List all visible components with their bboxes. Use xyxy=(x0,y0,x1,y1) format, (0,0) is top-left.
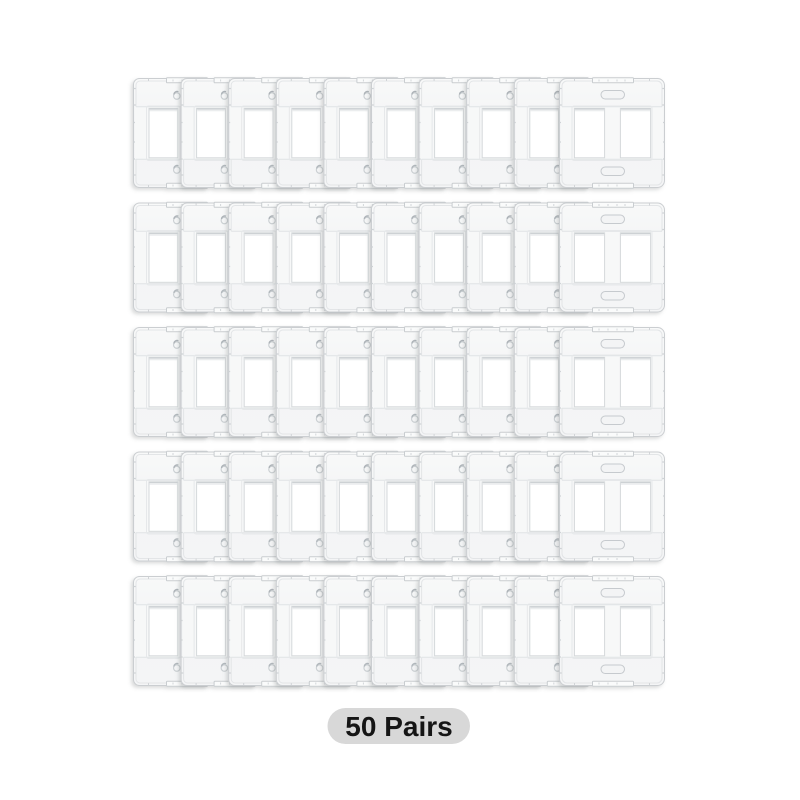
svg-text:50 Pairs: 50 Pairs xyxy=(345,711,452,742)
